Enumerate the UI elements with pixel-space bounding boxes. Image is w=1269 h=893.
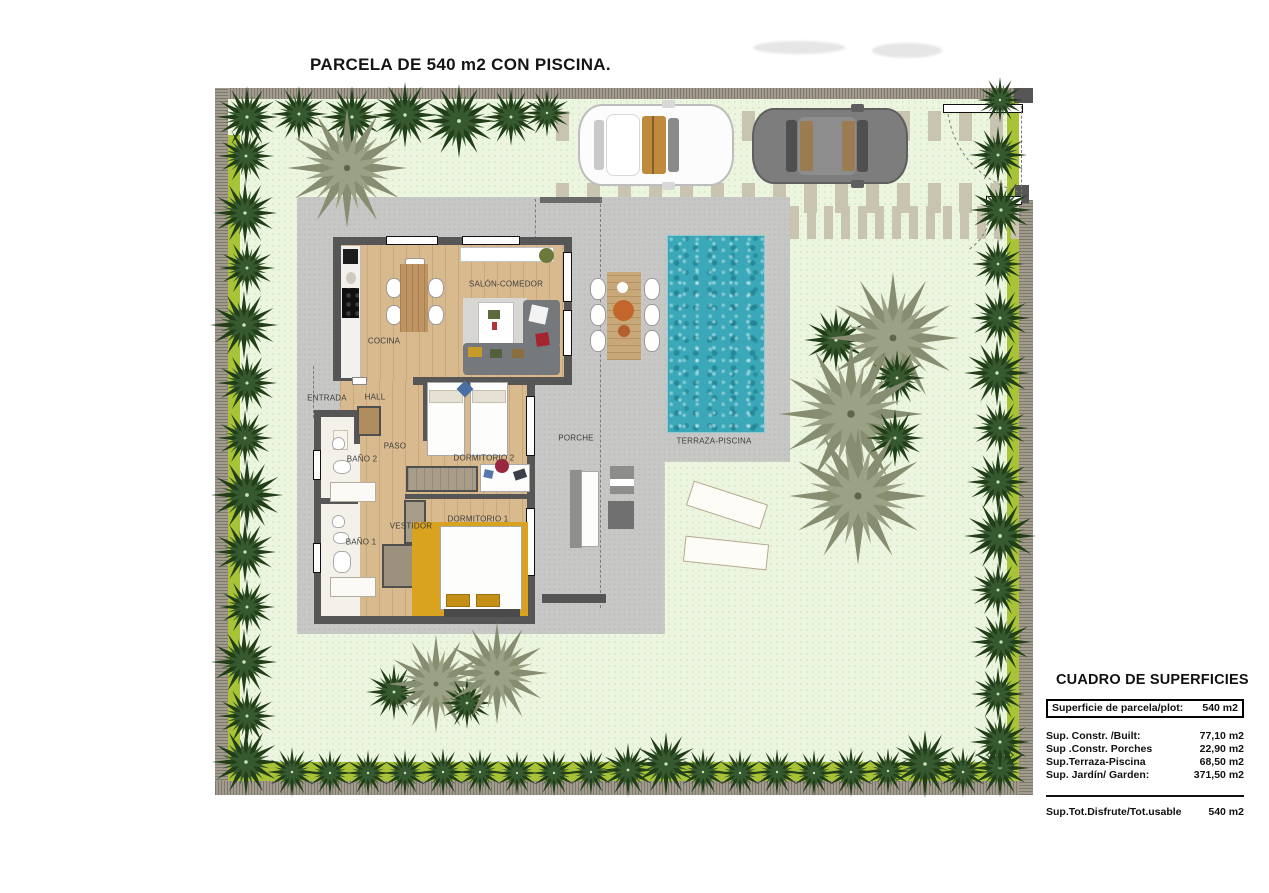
gate-opening-line (1021, 106, 1022, 202)
overhang-line (535, 199, 536, 239)
row-label: Sup .Constr. Porches (1046, 743, 1152, 756)
site-plan: PARCELA DE 540 m2 CON PISCINA. (0, 0, 1269, 893)
table-row: Sup. Constr. /Built: 77,10 m2 (1046, 730, 1244, 743)
row-label: Sup. Constr. /Built: (1046, 730, 1141, 743)
surfaces-rows: Sup. Constr. /Built: 77,10 m2 Sup .Const… (1046, 730, 1244, 782)
plant-pot (539, 248, 554, 263)
sofa-pillow (535, 332, 550, 347)
bed-pillow (429, 390, 463, 403)
side-mirror (662, 182, 675, 190)
side-mirror (662, 100, 675, 108)
toilet (332, 515, 345, 528)
side-mirror (851, 104, 864, 112)
sofa-pillow (512, 349, 524, 358)
plot-area-label: Superficie de parcela/plot: (1052, 702, 1183, 714)
bed-bench (444, 609, 520, 617)
seat-split (652, 116, 654, 174)
outdoor-chair (590, 330, 606, 352)
shower (330, 577, 376, 597)
bed-pillow (476, 594, 500, 607)
hedge-bottom (230, 762, 1019, 781)
dining-table (400, 264, 428, 332)
row-value: 22,90 m2 (1200, 743, 1244, 756)
kitchen-sink (343, 249, 358, 264)
path-pavers (790, 206, 1019, 239)
windshield (857, 120, 868, 172)
porch-step (542, 594, 606, 603)
terrace-edge (540, 197, 602, 203)
window (563, 310, 572, 356)
toilet (332, 437, 345, 450)
window (563, 252, 572, 302)
room-label-porche: PORCHE (558, 434, 593, 443)
outdoor-chair (590, 278, 606, 300)
room-label-vestidor: VESTIDOR (390, 522, 433, 531)
house-wall (333, 237, 341, 349)
car-roof (606, 114, 640, 176)
window (462, 236, 520, 245)
row-value: 77,10 m2 (1200, 730, 1244, 743)
room-label-terraza: TERRAZA-PISCINA (676, 437, 751, 446)
table-row: Sup .Constr. Porches 22,90 m2 (1046, 743, 1244, 756)
room-label-bano2: BAÑO 2 (347, 455, 378, 464)
desk-item (483, 469, 493, 479)
cooktop (342, 288, 359, 318)
room-label-entrada: ENTRADA (307, 394, 347, 403)
hall-closet (357, 406, 381, 436)
scan-artifact (872, 43, 942, 58)
room-label-cocina: COCINA (368, 337, 400, 346)
outdoor-chair (644, 330, 660, 352)
plot-area-value: 540 m2 (1202, 702, 1238, 714)
wardrobe (406, 466, 478, 492)
side-mirror (851, 180, 864, 188)
table-divider (1046, 795, 1244, 797)
sofa-pillow (468, 347, 482, 357)
room-label-dormitorio1: DORMITORIO 1 (448, 515, 509, 524)
bathtub (333, 551, 351, 573)
car-seats (800, 121, 813, 171)
wall-post (1014, 88, 1033, 103)
pedestrian-gate (986, 196, 1022, 205)
room-label-bano1: BAÑO 1 (346, 538, 377, 547)
room-label-paso: PASO (384, 442, 406, 451)
surfaces-table-title: CUADRO DE SUPERFICIES (1046, 672, 1244, 688)
artwork-detail (488, 310, 500, 319)
plot-area-row: Superficie de parcela/plot: 540 m2 (1046, 699, 1244, 718)
windshield (668, 118, 679, 172)
swimming-pool (667, 235, 765, 433)
shower (330, 482, 376, 502)
bed-pillow (446, 594, 470, 607)
kitchen-appliance (346, 272, 356, 284)
outdoor-dining-set (585, 270, 665, 362)
total-value: 540 m2 (1208, 806, 1244, 818)
rear-window (594, 120, 604, 170)
house-wall (335, 237, 572, 245)
boundary-wall-bottom (215, 781, 1033, 795)
car-cabin (642, 116, 666, 174)
table-row: Sup. Jardín/ Garden: 371,50 m2 (1046, 769, 1244, 782)
outdoor-chair (644, 278, 660, 300)
entrance-door (352, 377, 367, 385)
sofa-pillow (490, 349, 502, 358)
boundary-wall-left (215, 88, 228, 795)
bed-pillow (472, 390, 506, 403)
scan-artifact (753, 41, 845, 54)
car-gray (752, 108, 908, 184)
window (313, 543, 321, 573)
total-label: Sup.Tot.Disfrute/Tot.usable (1046, 806, 1182, 818)
row-label: Sup. Jardín/ Garden: (1046, 769, 1149, 782)
total-row: Sup.Tot.Disfrute/Tot.usable 540 m2 (1046, 806, 1244, 818)
porch-daybed (581, 471, 599, 547)
row-value: 68,50 m2 (1200, 756, 1244, 769)
boundary-wall-right (1019, 200, 1033, 795)
house-wall (314, 410, 321, 622)
outdoor-chair (644, 304, 660, 326)
hedge-left (228, 135, 240, 781)
porch-box (608, 501, 634, 529)
platter (613, 300, 634, 321)
outdoor-chair (590, 304, 606, 326)
car-seats (842, 121, 855, 171)
porch-overhang-line (600, 199, 601, 608)
row-label: Sup.Terraza-Piscina (1046, 756, 1146, 769)
sofa-pillow (528, 304, 548, 324)
room-label-salon: SALÓN-COMEDOR (469, 280, 543, 289)
room-label-hall: HALL (365, 393, 386, 402)
room-label-dormitorio2: DORMITORIO 2 (454, 454, 515, 463)
row-value: 371,50 m2 (1194, 769, 1244, 782)
window (313, 450, 321, 480)
entrance-gate (943, 104, 1023, 113)
plate (617, 282, 628, 293)
artwork-detail (492, 322, 497, 330)
surfaces-table: CUADRO DE SUPERFICIES Superficie de parc… (1046, 672, 1244, 818)
bowl (618, 325, 630, 337)
house-wall (405, 494, 535, 499)
dining-chair (428, 305, 444, 325)
dining-chair (428, 278, 444, 298)
table-row: Sup.Terraza-Piscina 68,50 m2 (1046, 756, 1244, 769)
window (526, 396, 535, 456)
rear-window (786, 120, 797, 172)
house-wall (314, 616, 535, 624)
window (386, 236, 438, 245)
boundary-wall-top (215, 88, 1033, 99)
car-white (578, 104, 734, 186)
plan-title: PARCELA DE 540 m2 CON PISCINA. (310, 55, 611, 75)
porch-table-top (610, 479, 634, 486)
